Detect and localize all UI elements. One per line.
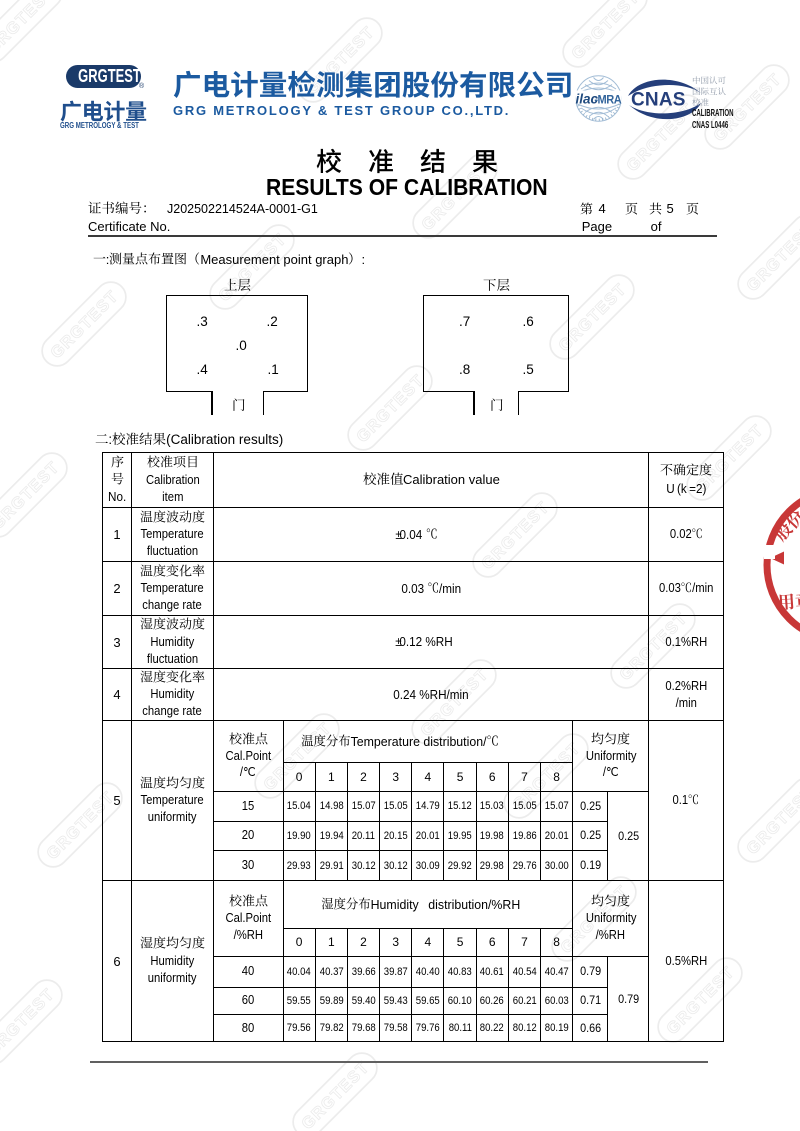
svg-text:CNAS: CNAS	[631, 90, 686, 111]
svg-text:GRGTEST: GRGTEST	[298, 1058, 373, 1131]
svg-text:GRGTEST: GRGTEST	[568, 0, 643, 63]
svg-text:-MRA: -MRA	[594, 94, 622, 106]
svg-text:GRGTEST: GRGTEST	[743, 220, 800, 295]
svg-text:GRGTEST: GRGTEST	[0, 0, 58, 58]
svg-text:GRGTEST: GRGTEST	[743, 783, 800, 858]
svg-text:GRGTEST: GRGTEST	[0, 985, 58, 1060]
svg-text:GRGTEST: GRGTEST	[47, 287, 122, 362]
svg-text:GRGTEST: GRGTEST	[0, 458, 63, 533]
svg-text:GRGTEST: GRGTEST	[353, 371, 428, 446]
